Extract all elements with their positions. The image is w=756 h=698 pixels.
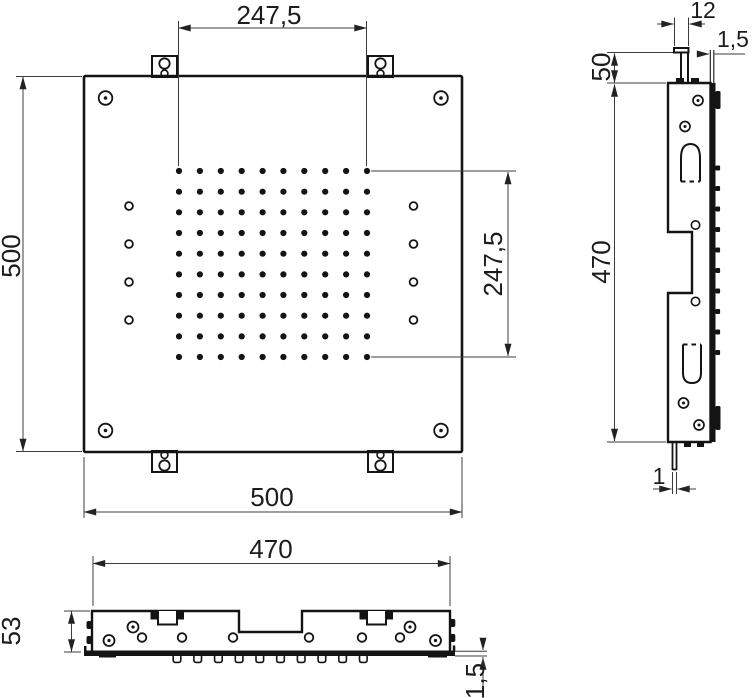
- technical-drawing: 247,5 500 500 247,5: [0, 0, 756, 698]
- side-plate-boss: [716, 91, 721, 109]
- dim-label-bottom-depth: 53: [0, 617, 26, 646]
- dim-label-bottom-width: 470: [249, 534, 292, 564]
- front-view: 247,5 500 500 247,5: [0, 0, 516, 518]
- side-plate-boss: [716, 406, 721, 430]
- bottom-body-outline: [92, 611, 450, 652]
- dim-label-side-plate: 1,5: [717, 26, 749, 52]
- dim-label-front-top: 247,5: [236, 0, 301, 30]
- dim-label-side-flange: 1: [653, 463, 666, 489]
- front-plate-face: [84, 76, 462, 452]
- technical-drawing-page: 247,5 500 500 247,5: [0, 0, 756, 698]
- dim-label-front-right: 247,5: [478, 231, 508, 296]
- front-mounting-tabs-top: [152, 56, 393, 77]
- side-mounting-bracket: [674, 48, 689, 82]
- side-body-outline: [668, 83, 711, 442]
- side-nozzle-nubs: [716, 166, 721, 356]
- front-mounting-tabs-bottom: [152, 451, 393, 472]
- side-front-plate-edge: [711, 83, 716, 442]
- dim-label-front-left: 500: [0, 234, 26, 277]
- side-view: 12 1,5 50 470 1: [586, 0, 749, 494]
- side-top-nub: [691, 78, 699, 84]
- dim-label-bottom-plate: 1,5: [460, 663, 490, 698]
- bottom-view: 470 53 1,5: [0, 534, 490, 698]
- dim-label-side-bracket: 50: [586, 53, 616, 82]
- side-bottom-flange: [673, 442, 705, 470]
- bottom-nozzle-nubs: [173, 656, 367, 662]
- dim-label-front-bottom: 500: [250, 482, 293, 512]
- dim-label-side-height: 470: [586, 240, 616, 283]
- dim-label-side-hook: 12: [690, 0, 716, 23]
